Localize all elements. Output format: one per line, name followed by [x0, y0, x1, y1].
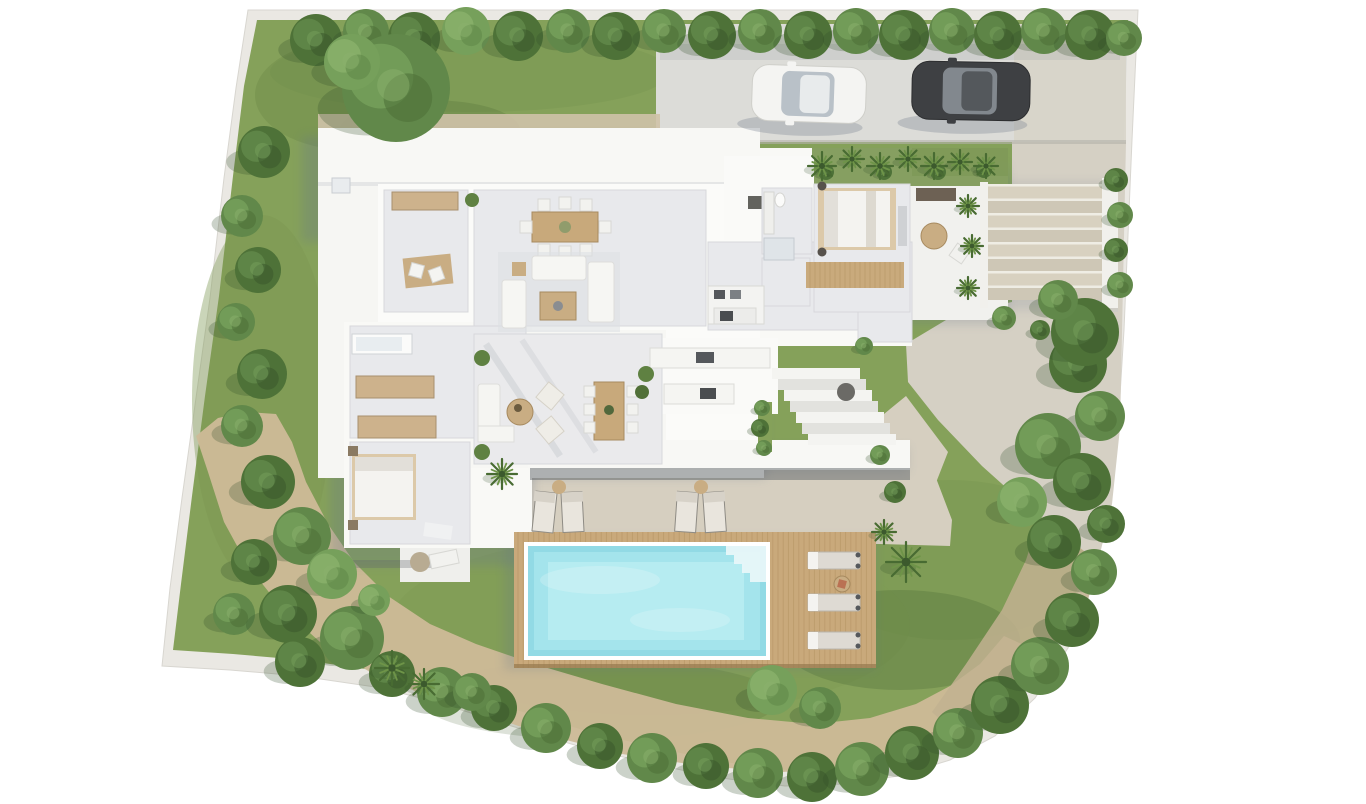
stairs-bush-light [1037, 327, 1043, 333]
garden-tree-light [465, 685, 476, 696]
garden-tree-light [643, 749, 658, 764]
bath-shower [764, 238, 794, 260]
outdoor-dining-chair [627, 422, 638, 433]
table-leaf-deco [604, 405, 614, 415]
wall-bush-light [1112, 176, 1119, 183]
garden-steps [772, 368, 860, 379]
garden-tree-light [291, 653, 306, 668]
car-white-roof [799, 75, 830, 114]
pool-step [734, 555, 766, 564]
bed-bench [898, 206, 907, 246]
palm-tree-crown [983, 163, 988, 168]
garden-tree-light [342, 52, 359, 69]
bbq-sink [696, 352, 714, 363]
palm-tree-crown [970, 244, 975, 249]
bbq-hob [700, 388, 716, 399]
patio-pouf [410, 552, 430, 572]
palm-tree-crown [849, 156, 854, 161]
palm-tree-crown [421, 681, 428, 688]
palm-tree-crown [957, 159, 962, 164]
covered-terrace-floor [474, 334, 662, 464]
sofa [502, 280, 526, 328]
garden-tree-light [278, 604, 295, 621]
hedge-tree-light [656, 23, 669, 36]
planter-bush [635, 385, 649, 399]
garden-tree-light [1045, 533, 1061, 549]
steps-bush-light [759, 405, 764, 410]
palm-tree-crown [966, 204, 971, 209]
garden-tree-light [949, 724, 964, 739]
garden-tree-light [903, 744, 919, 760]
entrance-stairs-edge [988, 228, 1102, 231]
lounger-wheel [856, 644, 861, 649]
kitchen-appliance [714, 290, 725, 299]
garden-tree-light [1030, 656, 1047, 673]
outdoor-dining-chair [584, 386, 595, 397]
garden-tree-light [813, 701, 826, 714]
palm-tree-crown [499, 471, 506, 478]
pool-ripple [540, 566, 660, 594]
garden-tree-light [1072, 472, 1089, 489]
entrance-stairs-edge [988, 271, 1102, 274]
bath-toilet [775, 193, 785, 207]
bathtub-basin [356, 337, 402, 351]
terrace-table-item [514, 404, 522, 412]
planter-bush [638, 366, 654, 382]
garden-tree-light [1013, 493, 1028, 508]
garden-tree-light [323, 565, 338, 580]
outdoor-dining-chair [584, 404, 595, 415]
hedge-tree-light [560, 23, 573, 36]
garden-tree-light [246, 554, 260, 568]
garden-steps [784, 390, 872, 401]
lounger-wheel [856, 606, 861, 611]
garden-tree-light [377, 69, 409, 101]
study-plant [465, 193, 479, 207]
hedge-tree-light [944, 23, 958, 37]
dining-chair [520, 221, 532, 233]
garden-tree-light [1086, 564, 1100, 578]
wall-bush-light [1115, 210, 1123, 218]
garden-tree-light [698, 758, 712, 772]
garden-tree-light [227, 607, 240, 620]
bbq-lower-counter [664, 384, 734, 404]
dining-chair [580, 199, 592, 211]
outdoor-dining-chair [584, 422, 595, 433]
lounger-pillow [808, 552, 818, 569]
gravel-lounger-back [704, 491, 726, 502]
garden-tree-light [1099, 517, 1110, 528]
garden-tree-light [229, 315, 240, 326]
gravel-lounger-back [676, 491, 698, 502]
garden-tree-light [749, 764, 764, 779]
garden-tree-light [235, 209, 248, 222]
study-chair [409, 263, 425, 279]
entrance-stairs-edge [988, 199, 1102, 202]
kitchen-appliance [730, 290, 741, 299]
garden-tree-light [341, 627, 360, 646]
garden-tree-light [255, 143, 271, 159]
car-white [737, 60, 867, 138]
garden-tree-light [1051, 293, 1063, 305]
palm-tree-crown [877, 163, 883, 169]
dining-centerpiece [559, 221, 571, 233]
entrance-stairs-edge [988, 257, 1102, 260]
garden-tree-light [1073, 320, 1093, 340]
hedge-tree-light [1081, 26, 1096, 41]
gravel-bush-light [861, 343, 866, 348]
palm-tree-crown [905, 156, 910, 161]
terrace-sofa-chaise [478, 426, 514, 442]
terrace-plant [474, 350, 490, 366]
closet-floor [762, 258, 810, 306]
study-wardrobe [392, 192, 458, 210]
hedge-tree-light [1036, 23, 1050, 37]
garden-tree-light [259, 473, 275, 489]
sofa [588, 262, 614, 322]
terrace-rattan-table [507, 399, 533, 425]
garden-tree-light [592, 738, 606, 752]
bedroom2-pillows [355, 457, 413, 471]
entrance-stairs-edge [988, 242, 1102, 245]
hedge-tree-light [704, 27, 718, 41]
pool-ripple [630, 608, 730, 632]
garden-steps [802, 423, 890, 434]
garden-tree-light [253, 365, 268, 380]
stairs-bush-light [1000, 314, 1007, 321]
site-plan-svg [0, 0, 1366, 804]
garden-tree-light [1063, 611, 1079, 627]
dining-chair [559, 197, 571, 209]
ac-unit [332, 178, 350, 193]
dining-chair [538, 199, 550, 211]
bath-vanity [764, 192, 774, 234]
steps-bush-light [757, 425, 762, 430]
lounger-wheel [856, 595, 861, 600]
car-dark-mirror [948, 58, 957, 63]
gravel-bush-light [877, 452, 883, 458]
car-dark-roof [961, 71, 992, 111]
tv-console [916, 188, 956, 201]
side-table [512, 262, 526, 276]
nightstand [348, 446, 358, 456]
lounger-wheel [856, 553, 861, 558]
fire-bowl [837, 383, 855, 401]
terrace-plant [474, 444, 490, 460]
outdoor-dining-chair [627, 404, 638, 415]
master-bed-pillows [824, 191, 838, 247]
pool-deck-edge [514, 664, 876, 668]
palm-tree-crown [819, 163, 825, 169]
lounger-pillow [808, 594, 818, 611]
garden-tree-light [235, 419, 248, 432]
hedge-tree-light [848, 23, 862, 37]
wardrobe [358, 416, 436, 438]
garden-steps [808, 434, 896, 445]
lounger-wheel [856, 564, 861, 569]
garden-tree-light [803, 768, 818, 783]
living-deco [553, 301, 563, 311]
nightstand [348, 520, 358, 530]
hedge-tree-light [458, 23, 472, 37]
palm-tree-crown [902, 558, 911, 567]
master-bed-throw [866, 191, 876, 247]
steps-bush-light [761, 445, 766, 450]
wall-bush-light [1112, 246, 1119, 253]
garden-tree-light [250, 262, 264, 276]
garden-tree-light [292, 526, 309, 543]
car-white-mirror [785, 120, 794, 125]
hedge-tree-light [509, 27, 524, 42]
terrace-round-table [921, 223, 947, 249]
kitchen-hob [720, 311, 733, 321]
site-plan [0, 0, 1366, 804]
palm-tree-crown [931, 163, 937, 169]
bed-lamp [818, 248, 827, 257]
garden-tree-light [853, 760, 869, 776]
gravel-bush-light [891, 488, 898, 495]
garden-tree-light [368, 594, 378, 604]
garden-tree-light [763, 681, 778, 696]
garden-tree-light [990, 695, 1007, 712]
hedge-tree-light [752, 23, 765, 36]
hedge-tree-light [895, 26, 910, 41]
hedge-tree-light [1118, 32, 1129, 43]
sofa [532, 256, 586, 280]
entrance-stairs-edge [988, 184, 1102, 187]
hedge-tree-light [800, 27, 814, 41]
bed-lamp [818, 182, 827, 191]
hedge-tree-light [307, 31, 323, 47]
garden-tree-light [1091, 407, 1106, 422]
car-dark-mirror [947, 119, 956, 124]
gravel-lounger-back [562, 491, 583, 502]
car-dark [897, 57, 1030, 135]
garden-steps [790, 401, 878, 412]
garden-tree-light [1036, 434, 1056, 454]
hedge-tree-light [608, 28, 622, 42]
pool-step [742, 564, 766, 573]
wardrobe [356, 376, 434, 398]
entrance-stairs-edge [988, 213, 1102, 216]
pool-step [750, 573, 766, 582]
dark-strip-south [530, 468, 910, 480]
lounger-side-table [694, 480, 708, 494]
lounger-wheel [856, 633, 861, 638]
garden-tree-light [537, 719, 552, 734]
dining-chair [599, 221, 611, 233]
garden-steps [796, 412, 884, 423]
wall-bush-light [1115, 280, 1123, 288]
car-white-mirror [787, 61, 796, 66]
palm-tree-crown [881, 529, 886, 534]
hedge-tree-light [990, 27, 1004, 41]
lounger-side-table [552, 480, 566, 494]
lounger-pillow [808, 632, 818, 649]
palm-tree-crown [388, 664, 395, 671]
palm-tree-crown [966, 286, 971, 291]
pool-step [726, 546, 766, 555]
